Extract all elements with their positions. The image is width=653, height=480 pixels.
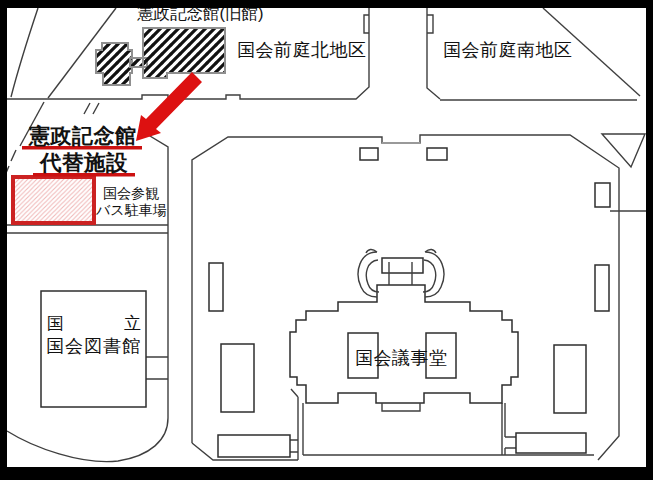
facility-label-line2: 代替施設 xyxy=(39,151,128,175)
library-label-line1-right: 立 xyxy=(124,314,141,333)
site-map-canvas: 憲政記念館(旧館) 国会前庭北地区 国会前庭南地区 憲政記念館 代替施設 国会参… xyxy=(0,0,653,480)
frame-left xyxy=(0,0,7,480)
bus-parking-label-line1: 国会参観 xyxy=(103,185,159,201)
diet-central-tower xyxy=(382,258,423,273)
gatepost-west xyxy=(360,148,378,160)
library-label-line1-left: 国 xyxy=(47,314,64,333)
frame-right xyxy=(646,0,653,480)
frame-bottom xyxy=(0,467,653,480)
old-hall-main-wing xyxy=(143,28,225,78)
annex-east-large xyxy=(554,345,586,413)
annex-east-gate xyxy=(595,183,610,207)
annex-south-east xyxy=(516,433,586,453)
diet-area-map: 憲政記念館(旧館) 国会前庭北地区 国会前庭南地区 憲政記念館 代替施設 国会参… xyxy=(0,0,653,480)
annex-south-west xyxy=(218,435,290,457)
facility-label-line1: 憲政記念館 xyxy=(28,124,137,147)
diet-building-label: 国会議事堂 xyxy=(355,348,448,368)
annex-west-large xyxy=(221,344,254,412)
frame-top xyxy=(0,0,653,8)
replacement-site-rect xyxy=(13,177,94,223)
annex-west-narrow xyxy=(209,263,223,311)
library-label-line2: 国会図書館 xyxy=(46,336,141,356)
south-garden-label: 国会前庭南地区 xyxy=(443,40,573,60)
north-garden-label: 国会前庭北地区 xyxy=(237,40,367,60)
annex-east-narrow xyxy=(595,265,609,311)
bus-parking-label-line2: バス駐車場 xyxy=(95,202,167,218)
gatepost-east xyxy=(427,148,447,160)
